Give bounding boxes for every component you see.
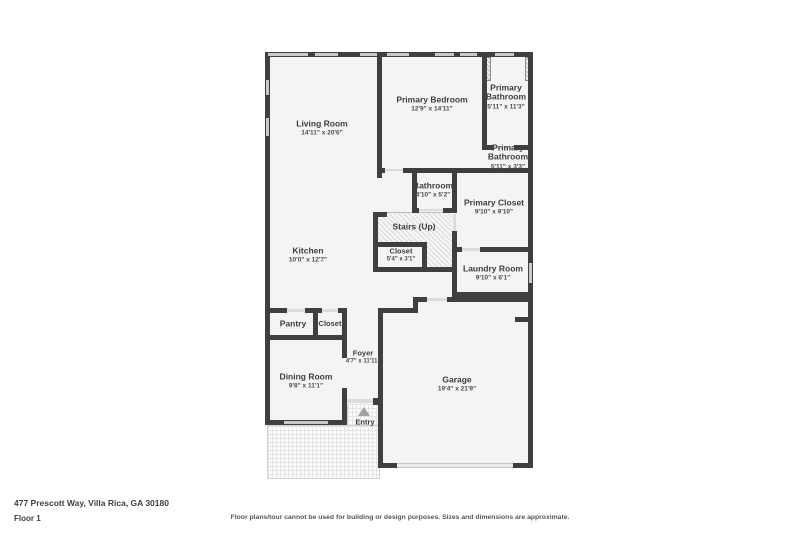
room-label-stairs: Stairs (Up) [393,222,436,231]
window [268,53,308,56]
room-dims: 9'10" x 6'1" [463,275,523,282]
window [387,53,409,56]
room-label-living-room: Living Room 14'11" x 20'6" [296,119,347,136]
wall [342,388,347,425]
wall [377,52,382,178]
door-opening [462,248,480,251]
room-name: Pantry [280,319,306,328]
wall [377,168,385,173]
room-label-primary-bedroom: Primary Bedroom 12'9" x 14'11" [396,95,467,112]
wall [378,308,418,313]
stairs-hatch-lower [427,242,452,267]
wall [265,308,287,313]
room-dims: 5'4" x 3'1" [387,257,416,263]
garage-door [397,463,513,468]
room-dims: 10'0" x 12'7" [289,257,327,264]
wall [373,398,383,405]
wall [452,231,457,297]
door-opening [453,214,456,231]
wall [513,463,533,468]
door-opening [427,298,447,301]
room-label-primary-closet: Primary Closet 9'10" x 9'10" [464,198,524,215]
room-label-stair-closet: Closet 5'4" x 3'1" [387,247,416,262]
wall [265,335,347,340]
room-name: Primary Bedroom [396,95,467,104]
floor-plan-page: Living Room 14'11" x 20'6" Primary Bedro… [0,0,800,533]
room-name: Closet [387,247,416,255]
room-name: Laundry Room [463,264,523,273]
room-label-laundry-room: Laundry Room 9'10" x 6'1" [463,264,523,281]
property-address: 477 Prescott Way, Villa Rica, GA 30180 [14,498,169,508]
floor-label: Floor 1 [14,514,41,523]
window [460,53,477,56]
room-label-foyer: Foyer 4'7" x 11'11" [346,349,381,364]
room-dims: 4'7" x 11'11" [346,359,381,365]
room-name: Closet [319,320,342,328]
window [315,53,338,56]
window [435,53,454,56]
door-opening [419,209,443,211]
disclaimer-text: Floor plans/tour cannot be used for buil… [231,514,570,521]
wall [378,308,383,468]
door-opening [287,309,305,312]
room-label-kitchen: Kitchen 10'0" x 12'7" [289,246,327,263]
window [495,53,514,56]
window [360,53,377,56]
entry-door-opening [347,399,373,403]
room-label-bathroom: Bathroom 4'10" x 5'2" [413,181,453,198]
room-label-dining-room: Dining Room 9'8" x 11'1" [280,372,333,389]
room-dims: 9'8" x 11'1" [280,383,333,390]
window [266,80,269,95]
room-name: Primary Bathroom [481,84,531,103]
room-name: Living Room [296,119,347,128]
window [529,263,532,283]
wall [412,208,419,213]
wall [480,247,533,252]
room-label-closet: Closet [319,320,342,328]
wall [528,52,533,468]
room-name: Foyer [346,349,381,357]
room-name: Primary Bathroom [483,144,533,163]
wall [443,208,457,213]
entry-arrow-icon [358,407,370,416]
porch-area [267,425,380,479]
door-opening [385,169,403,171]
door-opening [322,309,338,312]
wall [452,292,533,302]
room-dims: 9'10" x 9'10" [464,209,524,216]
window [284,421,328,424]
room-name: Primary Closet [464,198,524,207]
room-label-entry: Entry [355,418,374,427]
wall [265,52,270,425]
room-name: Kitchen [289,246,327,255]
window [266,118,269,136]
floor-area-garage [380,420,531,466]
room-name: Garage [438,375,476,384]
wall [515,317,533,322]
room-dims: 5'11" x 3'3" [483,163,533,170]
room-name: Dining Room [280,372,333,381]
room-label-garage: Garage 19'4" x 21'9" [438,375,476,392]
room-name: Stairs (Up) [393,222,436,231]
wall [373,267,457,272]
room-label-primary-bathroom-2: Primary Bathroom 5'11" x 3'3" [483,144,533,171]
room-dims: 14'11" x 20'6" [296,130,347,137]
room-name: Entry [355,418,374,427]
wall [447,297,457,302]
room-dims: 5'11" x 11'3" [481,103,531,110]
room-dims: 4'10" x 5'2" [413,192,453,199]
room-dims: 19'4" x 21'9" [438,386,476,393]
room-label-pantry: Pantry [280,319,306,328]
room-label-primary-bathroom-1: Primary Bathroom 5'11" x 11'3" [481,84,531,111]
room-name: Bathroom [413,181,453,190]
room-dims: 12'9" x 14'11" [396,106,467,113]
